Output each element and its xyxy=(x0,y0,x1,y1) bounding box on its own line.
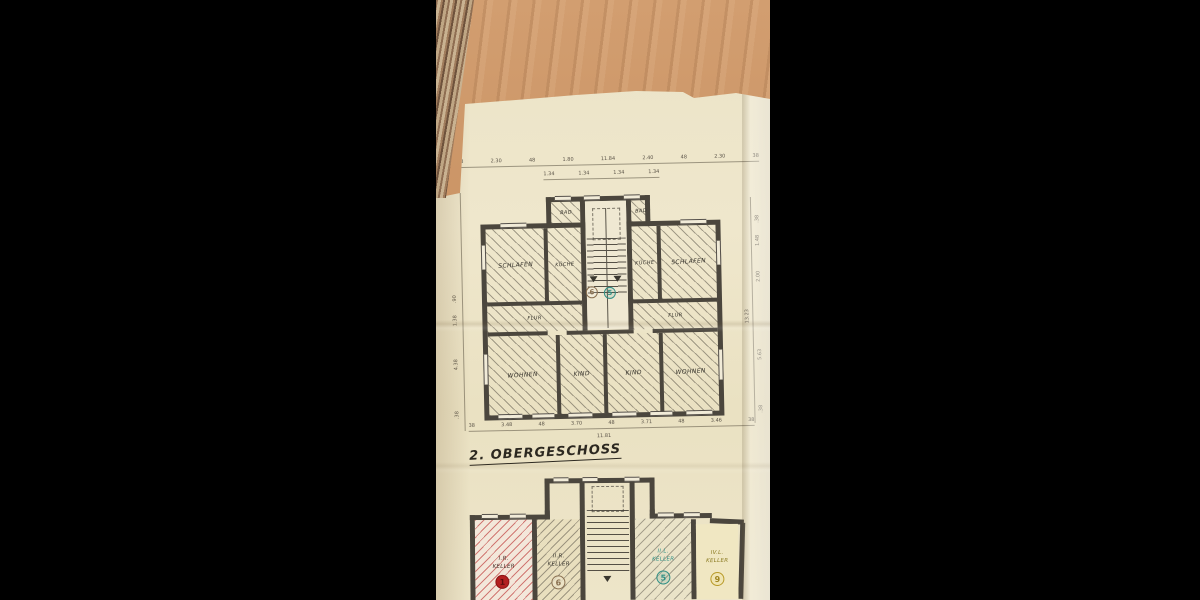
dimension-value: 48 xyxy=(678,418,684,424)
keller-number-badge: 9 xyxy=(710,572,724,586)
unit-number: 5 xyxy=(607,289,612,297)
room-kueche-left: KÜCHE xyxy=(547,228,582,302)
keller-label: IV.L. xyxy=(696,550,738,556)
keller-label: KELLER xyxy=(635,556,691,562)
room-label: KIND xyxy=(625,369,642,377)
stair-treads xyxy=(587,510,630,572)
room-label: WOHNEN xyxy=(507,371,538,380)
window xyxy=(582,477,597,482)
room-label: KÜCHE xyxy=(635,259,655,266)
keller-number: 1 xyxy=(500,577,506,586)
dimension-value: 2.30 xyxy=(714,153,725,159)
keller-number: 9 xyxy=(715,574,721,583)
room-label: SCHLAFEN xyxy=(671,257,706,266)
room-label: KÜCHE xyxy=(555,261,575,268)
room-label: BAD xyxy=(560,209,572,216)
keller-label: KELLER xyxy=(537,561,580,567)
window xyxy=(500,223,526,229)
room-schlafen-right: SCHLAFEN xyxy=(660,225,717,299)
dimension-value: 11.84 xyxy=(601,156,615,162)
dimension-value: 1.34 xyxy=(578,170,589,176)
dimension-value: 3.71 xyxy=(641,419,652,425)
window xyxy=(555,196,571,201)
dimension-line xyxy=(543,177,659,180)
keller-number-badge: 5 xyxy=(656,570,670,584)
window xyxy=(584,195,600,200)
room-kind-right: KIND xyxy=(607,333,661,413)
room-label: FLUR xyxy=(668,312,683,319)
window xyxy=(684,512,700,517)
room-wohnen-right: WOHNEN xyxy=(663,332,720,412)
room-label: SCHLAFEN xyxy=(498,261,533,270)
window xyxy=(680,219,706,225)
entrance-arrow-left xyxy=(590,276,598,282)
unit-number: 6 xyxy=(589,288,594,296)
room-wohnen-left: WOHNEN xyxy=(488,335,558,415)
dimension-value: 2.40 xyxy=(642,155,653,161)
keller-label: I.R. xyxy=(475,556,532,562)
room-label: WOHNEN xyxy=(676,367,707,376)
keller-number: 6 xyxy=(556,578,562,587)
dimension-value: 48 xyxy=(529,157,535,163)
window xyxy=(510,514,526,519)
window xyxy=(553,477,568,482)
keller-room-4: IV.L. KELLER 9 xyxy=(696,524,739,599)
dimension-value: 3.70 xyxy=(571,421,582,427)
dimension-value: 3.46 xyxy=(711,418,722,424)
entrance-arrow xyxy=(603,576,611,582)
room-label: BAD xyxy=(635,207,647,214)
dimension-total: 11.81 xyxy=(597,433,611,439)
room-schlafen-left: SCHLAFEN xyxy=(485,228,545,302)
photo-of-floor-plan: 38 2.30 48 1.80 11.84 2.40 48 2.30 38 1.… xyxy=(436,0,770,600)
stair-landing xyxy=(592,486,624,512)
dimension-row-top-2: 1.34 1.34 1.34 1.34 xyxy=(543,169,659,177)
window xyxy=(718,350,724,380)
floor-plan-keller: I.R. KELLER 1 II.R. KELLER 6 II.L. KELLE… xyxy=(436,469,770,600)
horizontal-fold-crease xyxy=(436,320,770,332)
keller-label: II.L. xyxy=(635,548,691,554)
dimension-value: 2.30 xyxy=(491,158,502,164)
room-bad-right: BAD xyxy=(631,200,650,221)
room-label: KIND xyxy=(574,370,591,378)
room-bad-left: BAD xyxy=(551,202,580,224)
dimension-value: 1.80 xyxy=(562,157,573,163)
dimension-value: 3.48 xyxy=(501,422,512,428)
window xyxy=(482,514,498,519)
room-kind-left: KIND xyxy=(560,334,605,414)
keller-room-3: II.L. KELLER 5 xyxy=(635,518,692,599)
window xyxy=(658,512,674,517)
entrance-arrow-right xyxy=(613,276,621,282)
dimension-value: 48 xyxy=(538,421,544,427)
keller-label: KELLER xyxy=(475,564,532,570)
keller-number-badge: 1 xyxy=(495,575,509,589)
keller-room-2: II.R. KELLER 6 xyxy=(537,519,581,600)
keller-label: KELLER xyxy=(696,558,738,564)
dimension-value: 48 xyxy=(681,154,687,160)
wall xyxy=(580,482,586,600)
dimension-value: 1.34 xyxy=(613,170,624,176)
vertical-fold-crease xyxy=(742,90,770,600)
dimension-value: 1.34 xyxy=(543,171,554,177)
horizontal-fold-crease xyxy=(436,462,770,474)
dimension-value: 1.34 xyxy=(648,169,659,175)
keller-room-1: I.R. KELLER 1 xyxy=(475,520,533,600)
dimension-value: 48 xyxy=(608,420,614,426)
keller-label: II.R. xyxy=(537,553,580,559)
room-kueche-right: KÜCHE xyxy=(631,226,658,300)
window xyxy=(716,241,722,265)
keller-number-badge: 6 xyxy=(551,575,565,589)
keller-number: 5 xyxy=(661,573,667,582)
